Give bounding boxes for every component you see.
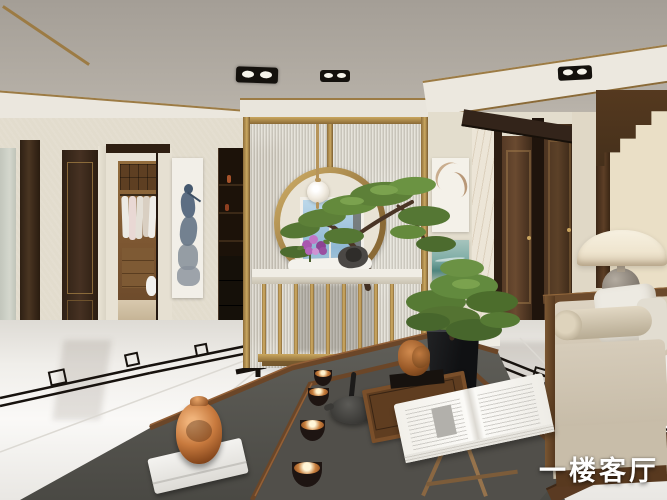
copper-jar-lid [190, 396, 208, 406]
copper-jar [176, 402, 222, 464]
watermark-text: 一楼客厅 [539, 449, 659, 488]
living-room-scene: 一楼客厅 [0, 0, 667, 500]
floor-bonsai [0, 0, 667, 500]
bronze-sculpture [398, 340, 430, 376]
